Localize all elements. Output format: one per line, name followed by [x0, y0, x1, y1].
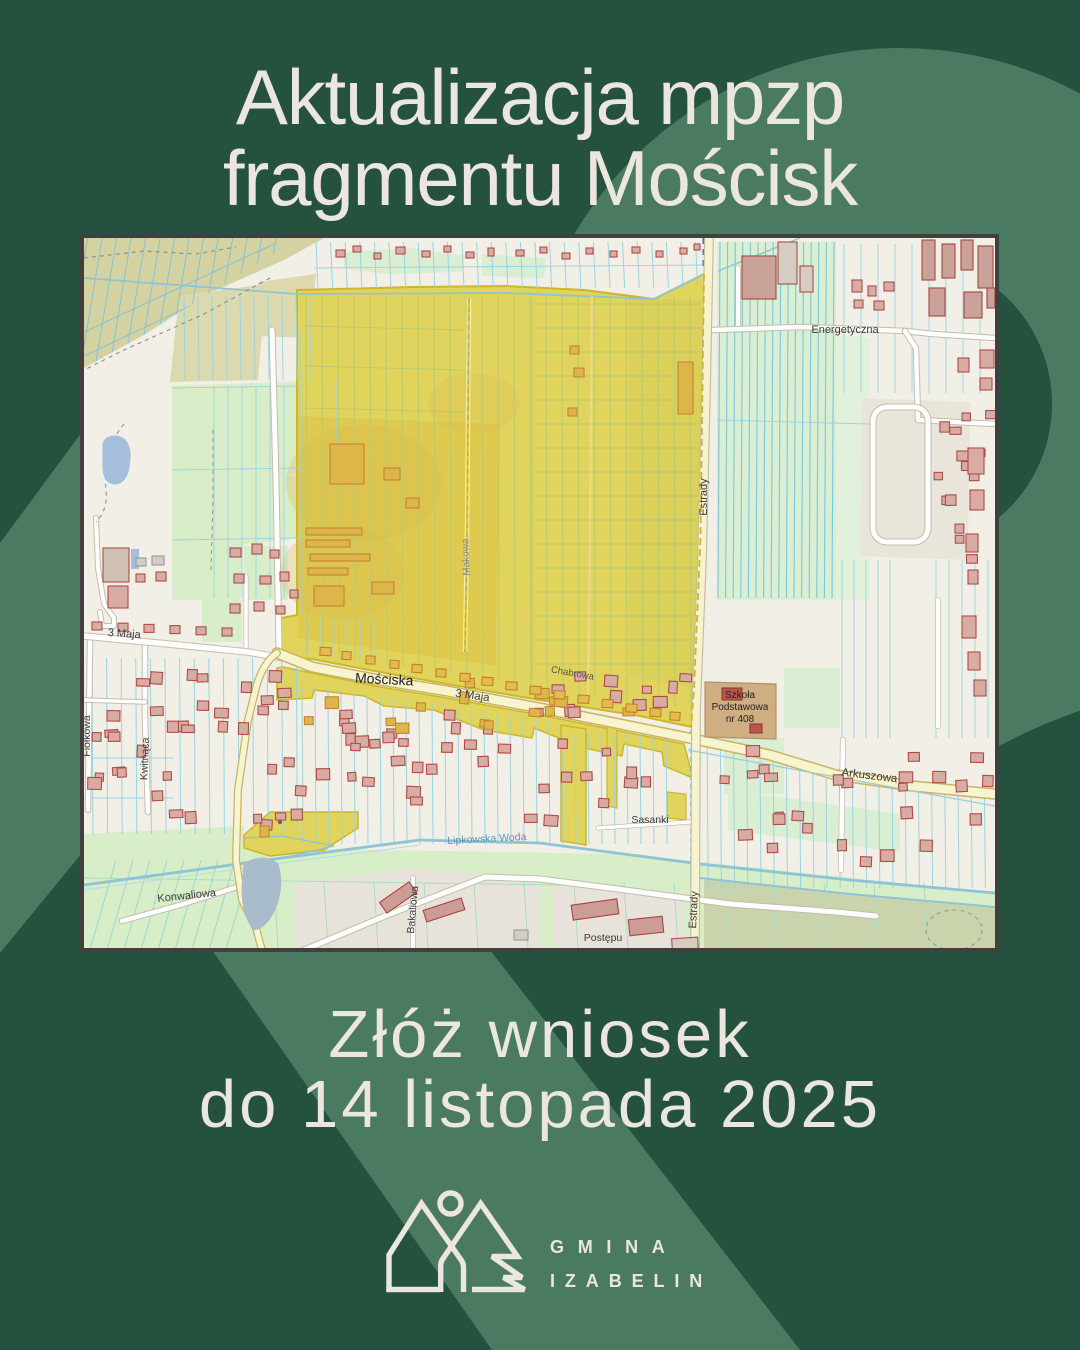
svg-text:Mościska: Mościska: [355, 669, 414, 688]
svg-text:Estrady: Estrady: [698, 478, 710, 516]
svg-text:Postępu: Postępu: [584, 932, 623, 944]
svg-text:Energetyczna: Energetyczna: [811, 324, 879, 336]
svg-text:Szkoła: Szkoła: [725, 690, 755, 701]
svg-text:Makowa: Makowa: [460, 538, 472, 576]
svg-text:3 Maja: 3 Maja: [107, 627, 142, 641]
svg-text:nr 408: nr 408: [726, 714, 755, 725]
svg-text:Sasanki: Sasanki: [631, 814, 668, 826]
svg-text:IZABELIN: IZABELIN: [550, 1271, 712, 1291]
svg-text:Estrady: Estrady: [687, 890, 701, 928]
svg-text:GMINA: GMINA: [550, 1237, 679, 1257]
svg-text:Kwitnąca: Kwitnąca: [138, 737, 151, 780]
svg-text:Podstawowa: Podstawowa: [712, 702, 769, 713]
